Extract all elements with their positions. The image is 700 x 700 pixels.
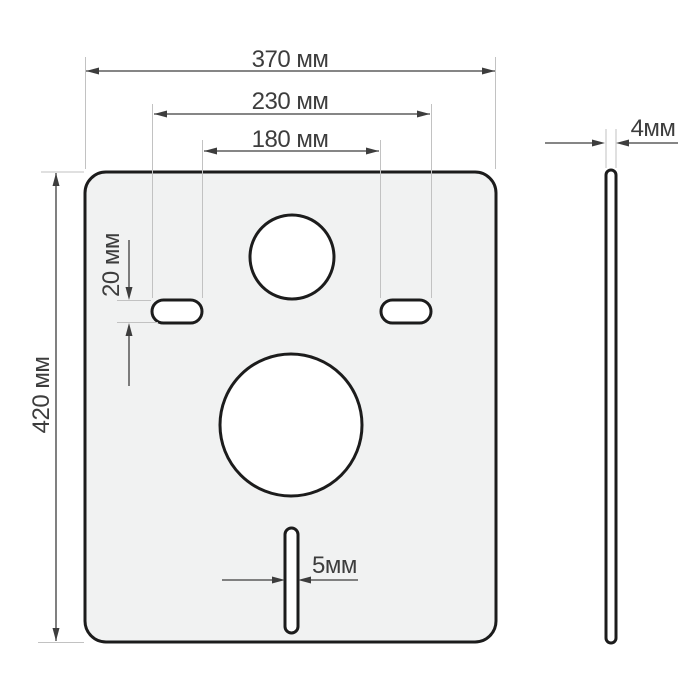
technical-drawing: 370 мм 230 мм 180 мм 420 мм [0, 0, 700, 700]
right-mounting-slot [381, 300, 431, 323]
dim-label-420: 420 мм [28, 357, 55, 434]
dim-label-4: 4мм [631, 115, 676, 142]
dim-label-370: 370 мм [252, 46, 329, 73]
side-view [606, 170, 616, 643]
dim-label-230: 230 мм [252, 88, 329, 115]
arrowhead-420-bottom [53, 628, 60, 641]
arrowhead-230-right [417, 111, 430, 118]
arrowhead-420-top [53, 173, 60, 186]
arrowhead-4-left [616, 140, 629, 147]
large-hole [220, 354, 362, 496]
dim-plate-height: 420 мм [28, 172, 84, 643]
dim-label-180: 180 мм [252, 126, 329, 153]
arrowhead-180-right [366, 148, 379, 155]
small-hole [250, 215, 334, 299]
dim-holes-outer-span: 230 мм [154, 88, 430, 118]
arrowhead-370-right [482, 68, 495, 75]
side-profile [606, 170, 616, 643]
front-view [85, 104, 496, 642]
left-mounting-slot [152, 300, 202, 323]
dim-holes-inner-span: 180 мм [204, 126, 379, 155]
dim-label-20: 20 мм [98, 233, 125, 297]
arrowhead-4-right [592, 140, 605, 147]
arrowhead-370-left [86, 68, 99, 75]
drawing-svg: 370 мм 230 мм 180 мм 420 мм [0, 0, 700, 700]
dim-label-5: 5мм [312, 552, 357, 579]
bottom-slot [285, 528, 298, 633]
arrowhead-180-left [204, 148, 217, 155]
dim-thickness: 4мм [545, 115, 678, 168]
arrowhead-230-left [154, 111, 167, 118]
